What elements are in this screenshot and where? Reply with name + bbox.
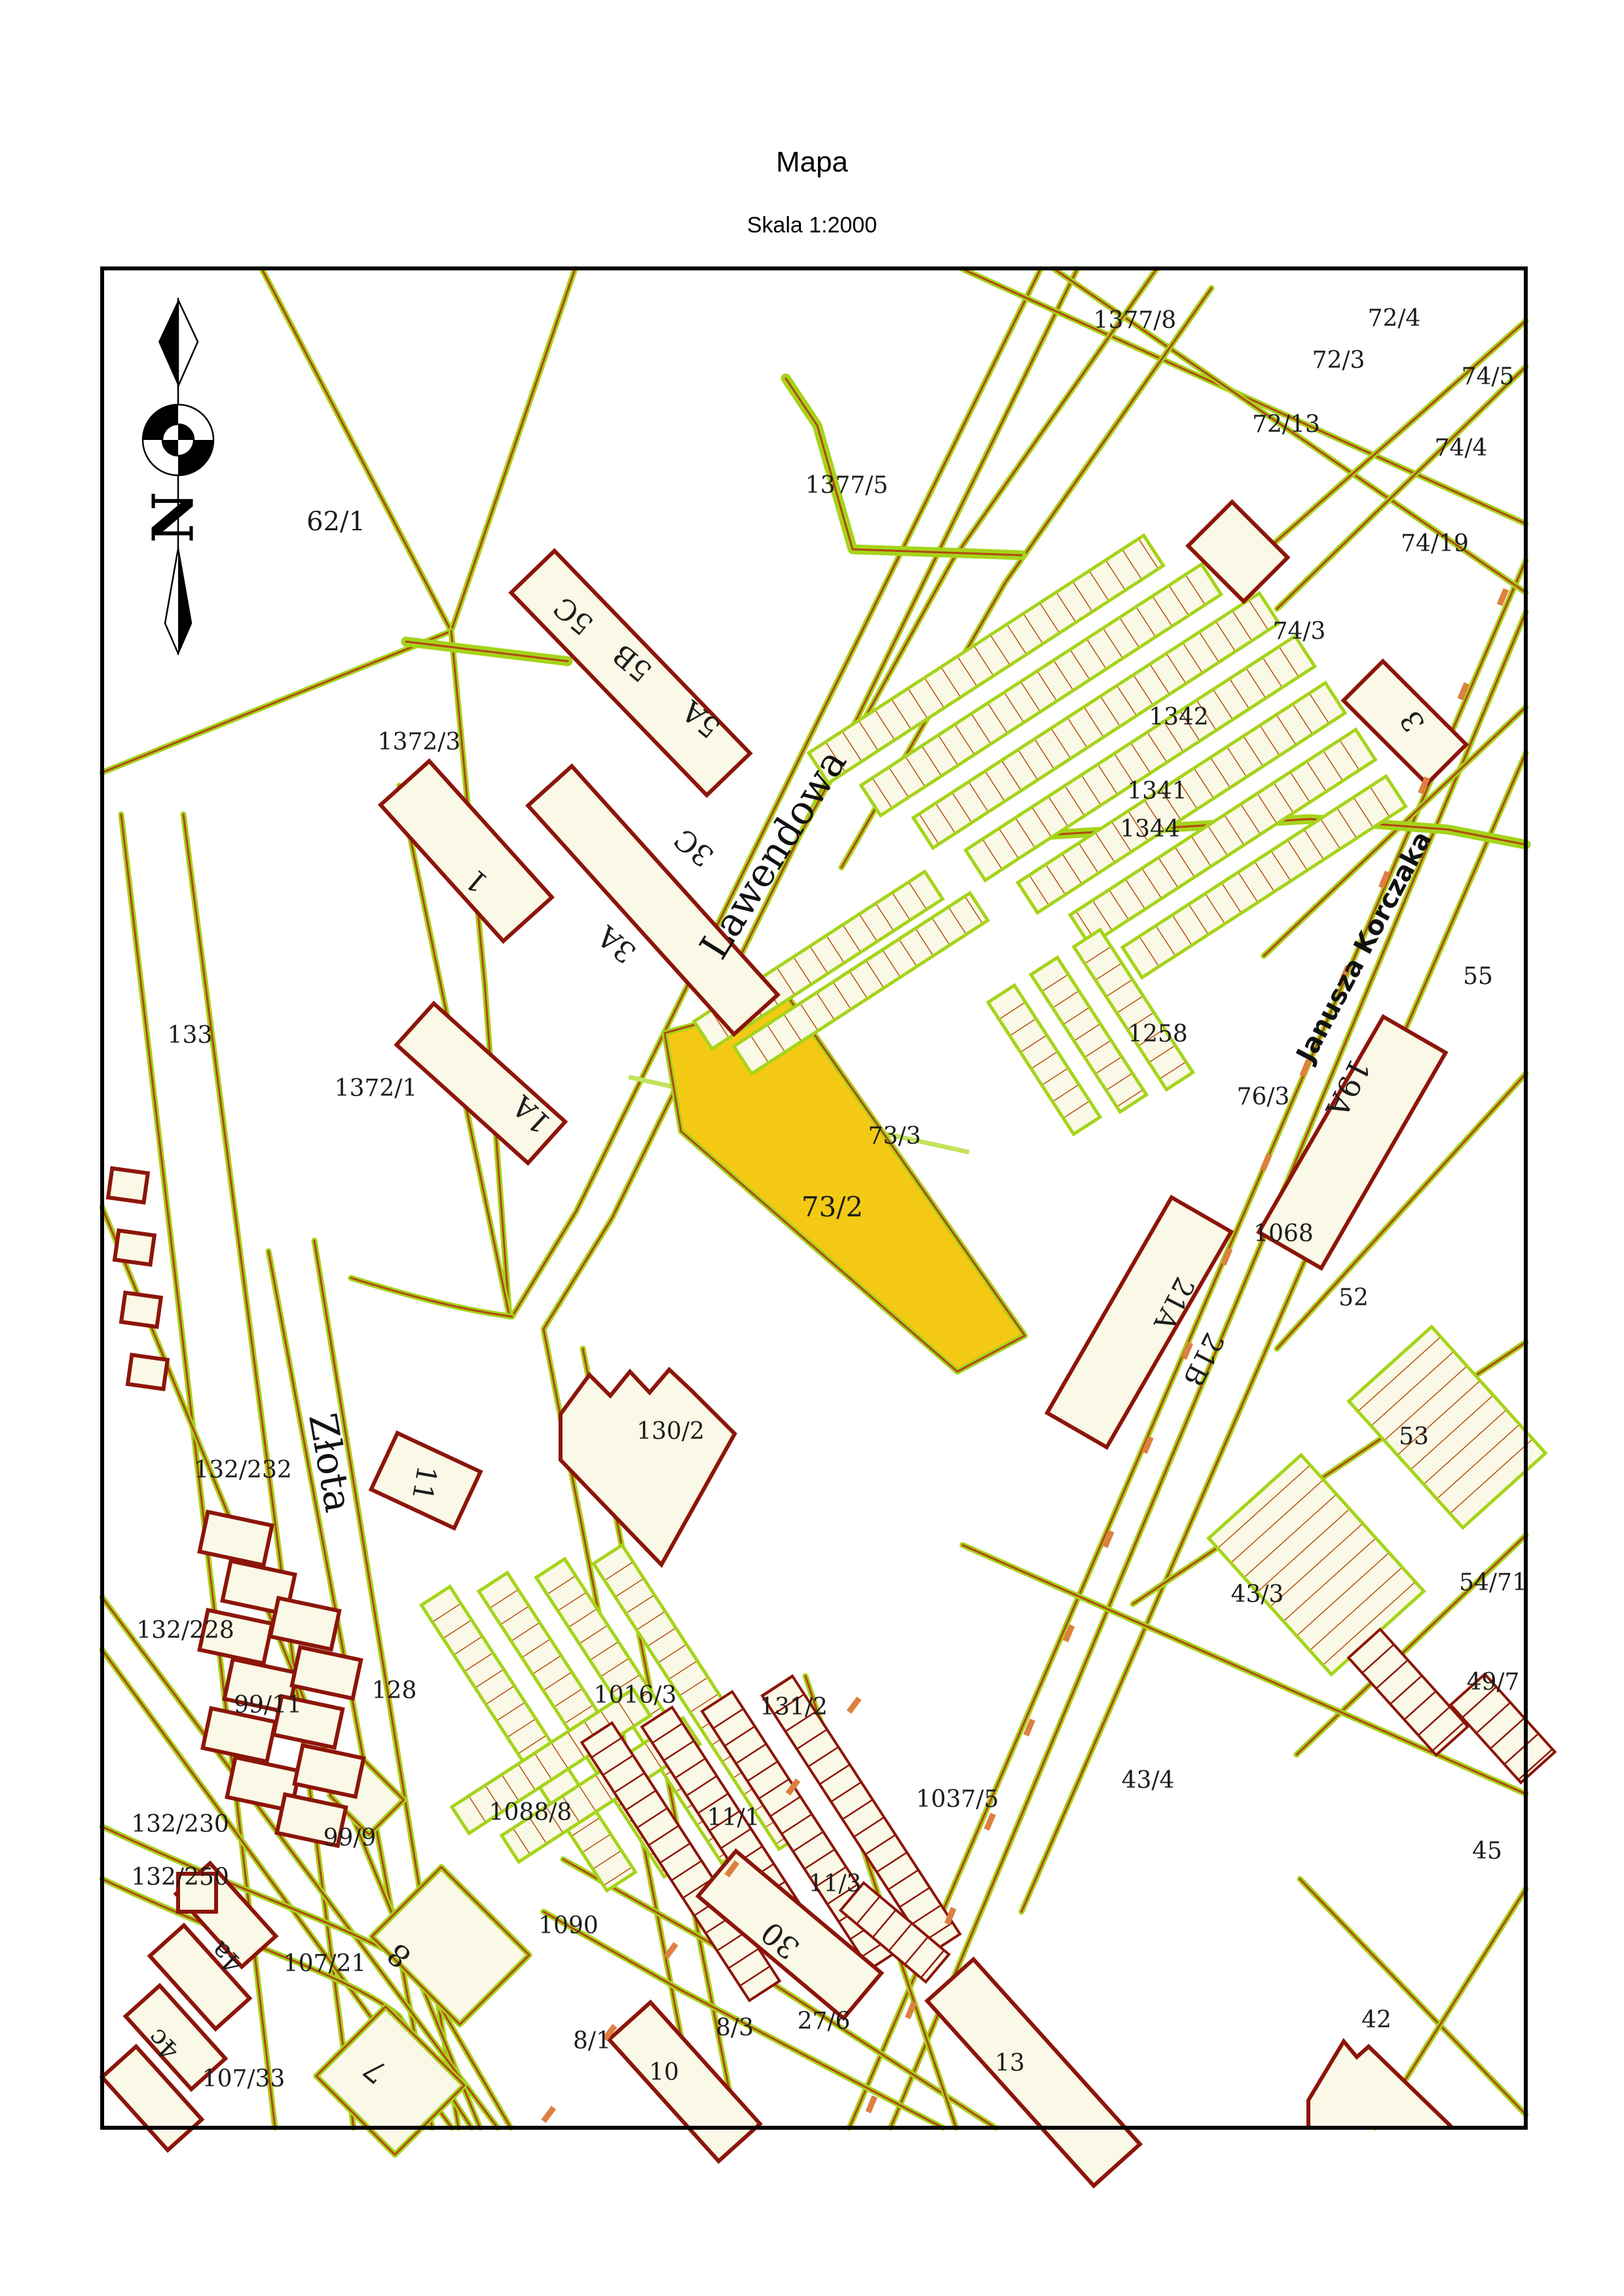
parcel-label-43-3: 43/3	[1231, 1581, 1284, 1608]
parcel-label-1372-3: 1372/3	[378, 729, 461, 756]
parcel-label-1377-8: 1377/8	[1094, 307, 1177, 334]
building-1a	[397, 1004, 566, 1163]
rowhouses-99-11-west	[200, 1512, 300, 1810]
parcel-label-133: 133	[168, 1022, 213, 1049]
parcel-label-1037-5: 1037/5	[916, 1786, 999, 1813]
page-scale: Skala 1:2000	[747, 213, 877, 238]
parcel-label-53: 53	[1399, 1423, 1429, 1450]
garage-grid-54-71-b	[1349, 1327, 1545, 1528]
parcel-label-43-4: 43/4	[1122, 1767, 1175, 1794]
parcel-label-1088-8: 1088/8	[489, 1799, 572, 1826]
parcel-label-52: 52	[1338, 1285, 1369, 1311]
parcel-label-1341: 1341	[1127, 778, 1187, 805]
parcel-label-1344: 1344	[1120, 816, 1180, 843]
compass-tail-fill	[178, 549, 191, 653]
parcel-label-73-2: 73/2	[802, 1191, 863, 1223]
parcel-label-74-3: 74/3	[1273, 618, 1326, 645]
street-label-złota: Złota	[300, 1410, 361, 1515]
parcel-label-72-13: 72/13	[1252, 411, 1320, 438]
parcel-label-11-3: 11/3	[809, 1870, 862, 1897]
parcel-label-8-3: 8/3	[716, 2014, 754, 2041]
parcel-label-73-3: 73/3	[868, 1123, 921, 1150]
parcel-label-107-33: 107/33	[202, 2066, 286, 2092]
parcel-label-62-1: 62/1	[306, 507, 365, 537]
parcel-label-1372-1: 1372/1	[335, 1075, 418, 1102]
parcel-label-74-4: 74/4	[1435, 435, 1488, 462]
parcel-label-1016-3: 1016/3	[594, 1682, 677, 1709]
highlighted-parcel-73-2	[665, 998, 1025, 1372]
parcel-label-1342: 1342	[1149, 704, 1209, 731]
parcel-label-74-19: 74/19	[1401, 530, 1469, 557]
parcel-label-1377-5: 1377/5	[805, 472, 889, 499]
page-title: Mapa	[776, 146, 849, 178]
parcel-label-8-1: 8/1	[573, 2028, 611, 2054]
parcel-label-99-9: 99/9	[323, 1825, 377, 1851]
map-canvas: Mapa Skala 1:2000	[0, 0, 1624, 2296]
building-130-2	[561, 1370, 735, 1565]
map-page: Mapa Skala 1:2000	[0, 0, 1624, 2296]
parcel-label-10: 10	[649, 2059, 679, 2086]
parcel-label-72-3: 72/3	[1312, 347, 1365, 374]
small-buildings-left-edge	[108, 1168, 216, 1912]
parcel-label-76-3: 76/3	[1237, 1084, 1290, 1110]
building-label-3c: 3C	[668, 822, 720, 873]
parcel-label-132-250: 132/250	[131, 1864, 229, 1891]
parcel-label-131-2: 131/2	[760, 1694, 828, 1721]
compass-north-label: N	[141, 492, 207, 543]
parcel-label-1090: 1090	[538, 1912, 599, 1939]
compass-diamond-left	[158, 300, 178, 386]
parcel-label-45: 45	[1472, 1838, 1502, 1865]
parcel-label-132-228: 132/228	[136, 1617, 234, 1644]
building-label-11: 11	[406, 1463, 444, 1503]
parcel-label-49-7: 49/7	[1467, 1669, 1520, 1696]
parcel-label-42: 42	[1361, 2007, 1392, 2033]
parcel-label-13: 13	[995, 2050, 1025, 2077]
parcel-label-27-6: 27/6	[798, 2008, 851, 2035]
parcel-label-55: 55	[1463, 963, 1493, 990]
parcel-label-107-21: 107/21	[284, 1950, 367, 1977]
north-compass: N	[141, 298, 214, 655]
parcel-label-128: 128	[372, 1677, 417, 1704]
parcel-label-1258: 1258	[1128, 1021, 1188, 1048]
compass-diamond-right	[178, 300, 198, 386]
parcel-label-54-71: 54/71	[1459, 1569, 1527, 1596]
parcel-label-72-4: 72/4	[1368, 305, 1421, 332]
building-13	[927, 1959, 1140, 2186]
parcel-label-1068: 1068	[1253, 1220, 1314, 1247]
parcel-label-11-1: 11/1	[707, 1804, 760, 1831]
parcel-label-74-5: 74/5	[1462, 363, 1515, 390]
parcel-label-132-232: 132/232	[194, 1457, 292, 1484]
building-21a-21b	[1047, 1197, 1231, 1448]
parcel-label-99-11: 99/11	[234, 1692, 302, 1719]
parcel-label-130-2: 130/2	[637, 1418, 705, 1445]
parcel-label-132-230: 132/230	[131, 1811, 229, 1838]
building-42	[1308, 2041, 1452, 2128]
